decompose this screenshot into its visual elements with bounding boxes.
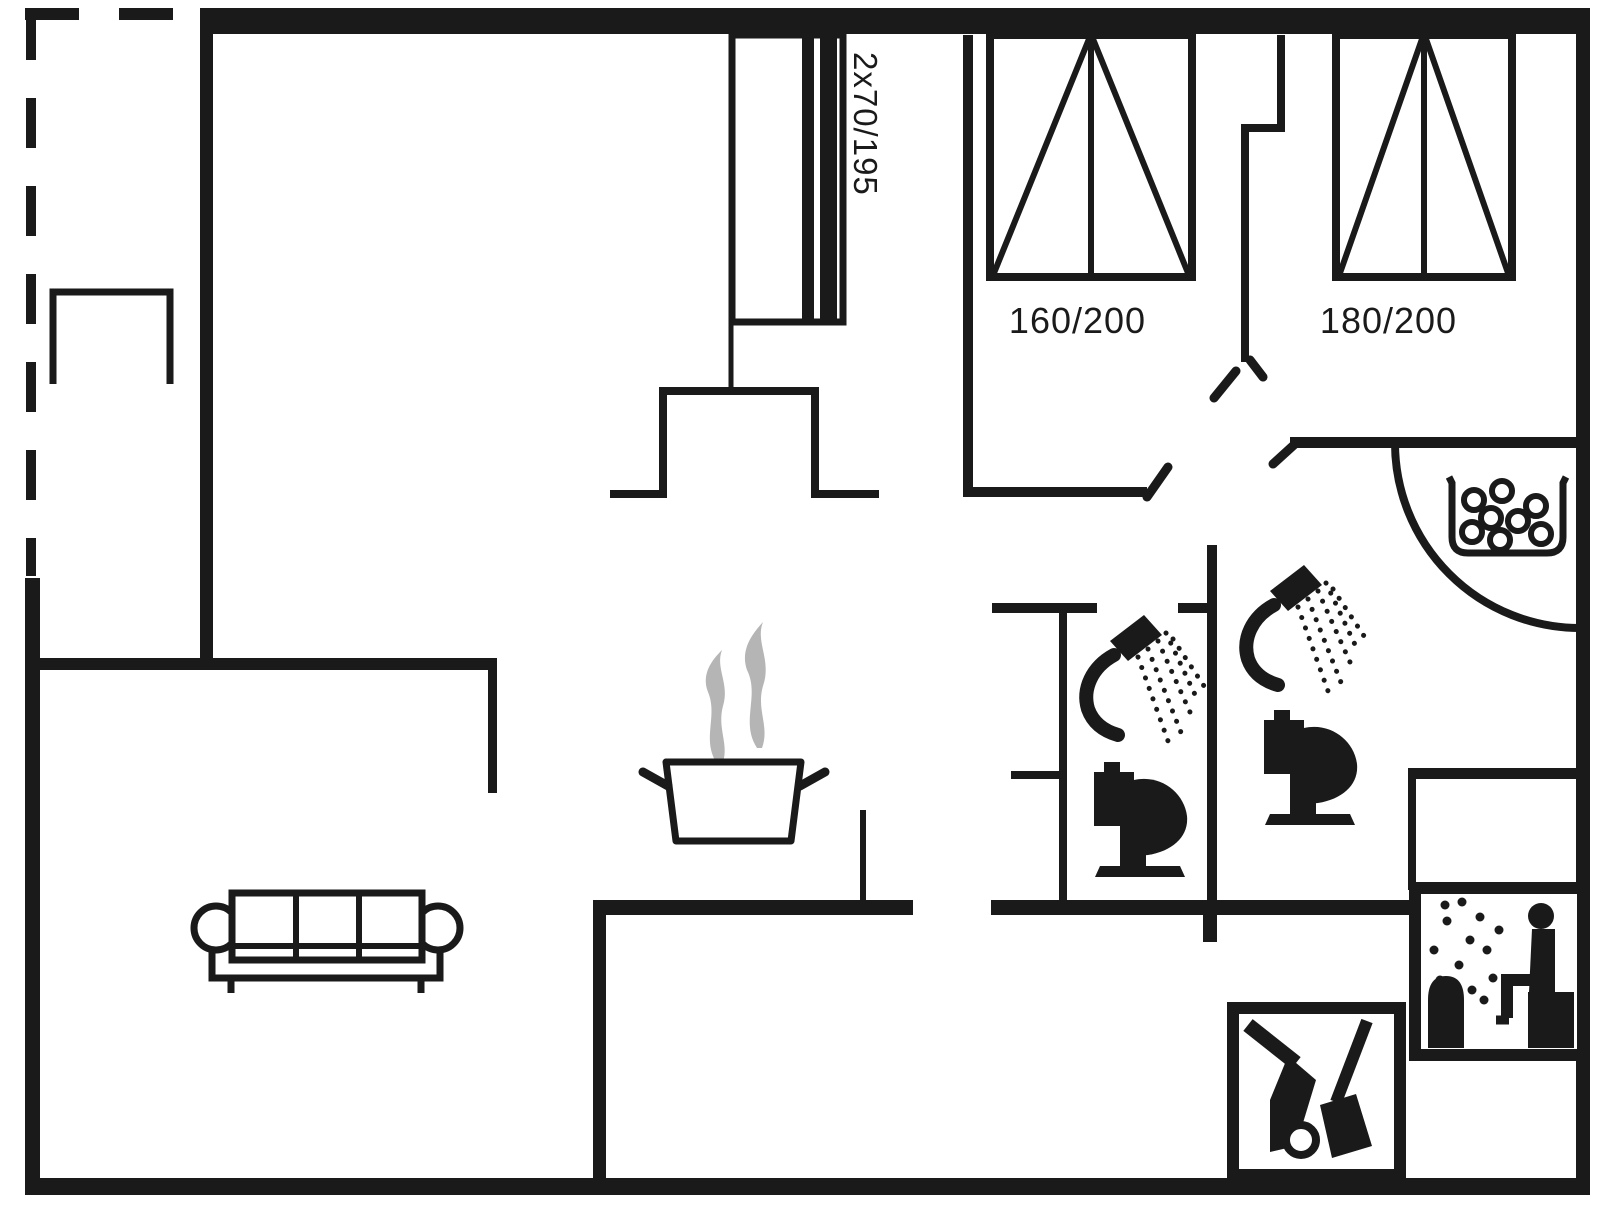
- sauna-connector-wall: [1408, 768, 1416, 890]
- pot-body: [666, 762, 801, 841]
- sauna-bench: [1528, 992, 1574, 1048]
- kitchen-counter-wall-right: [991, 900, 1415, 915]
- bedroom-divider-wall-jog: [1245, 124, 1285, 132]
- bed-right-size-label: 180/200: [1296, 300, 1481, 342]
- living-room-divider-wall: [25, 658, 497, 670]
- pot-handle: [800, 772, 825, 786]
- toilet-icon: [1264, 710, 1357, 825]
- sauna-icon: [1415, 888, 1583, 1055]
- whirlpool-icon: [1449, 477, 1566, 553]
- wardrobe-icon: [610, 391, 879, 494]
- toilet-icon: [1094, 762, 1187, 877]
- sofa-cushions: [232, 893, 422, 960]
- door-leaf-stroke: [1214, 371, 1236, 398]
- sofa-icon: [194, 893, 460, 993]
- bubbles: [1462, 481, 1551, 550]
- bathroom2-bottom-wall: [1408, 768, 1576, 779]
- outer-wall-top: [200, 8, 1590, 34]
- bunk-bed-icon: [731, 35, 843, 392]
- bed-left-size-label: 160/200: [985, 300, 1170, 342]
- door-leaf-stroke: [1147, 467, 1168, 497]
- bedroom-divider-wall-a: [1277, 35, 1285, 130]
- bathroom-top-wall-left: [992, 603, 1097, 613]
- living-room-divider-wall-vertical: [488, 658, 497, 793]
- shower-icon: [1246, 565, 1366, 691]
- bedroom-left-bottom-wall: [963, 487, 1147, 497]
- closet-wall-vertical: [1059, 608, 1067, 905]
- door-leaf-stroke: [1250, 360, 1263, 377]
- interior-wall-left-upper: [200, 8, 213, 670]
- floor-plan-svg: [0, 0, 1606, 1205]
- floor-plan: 2x70/195 160/200 180/200: [0, 0, 1606, 1205]
- steam-icon: [745, 622, 766, 748]
- bedroom-left-wall: [963, 35, 973, 497]
- sauna-stove: [1428, 976, 1464, 1048]
- hall-top-wall: [1290, 437, 1576, 448]
- terrace-dashed-boundary: [25, 10, 197, 576]
- double-bed-160x200-icon: [990, 35, 1192, 277]
- shower-icon: [1086, 615, 1206, 741]
- steam-icon: [706, 650, 725, 762]
- bedroom-divider-wall-b: [1241, 124, 1249, 362]
- dining-left-wall: [593, 900, 606, 1185]
- cooking-pot-icon: [643, 622, 825, 841]
- kitchen-counter-divider: [860, 810, 866, 905]
- bathroom-divider-wall: [1207, 545, 1217, 942]
- bunk-bed-size-label: 2x70/195: [846, 52, 884, 262]
- door-leaf-stroke: [1273, 444, 1295, 464]
- closet-shelf-stub: [1011, 771, 1059, 779]
- cleaning-equipment-icon: [1233, 1008, 1400, 1175]
- bathroom-top-wall-right: [1178, 603, 1212, 613]
- double-bed-180x200-icon: [1336, 35, 1512, 277]
- terrace-window-marker: [53, 292, 170, 384]
- wall-stub-below-bath: [1203, 915, 1214, 942]
- vacuum-wheel: [1286, 1125, 1316, 1155]
